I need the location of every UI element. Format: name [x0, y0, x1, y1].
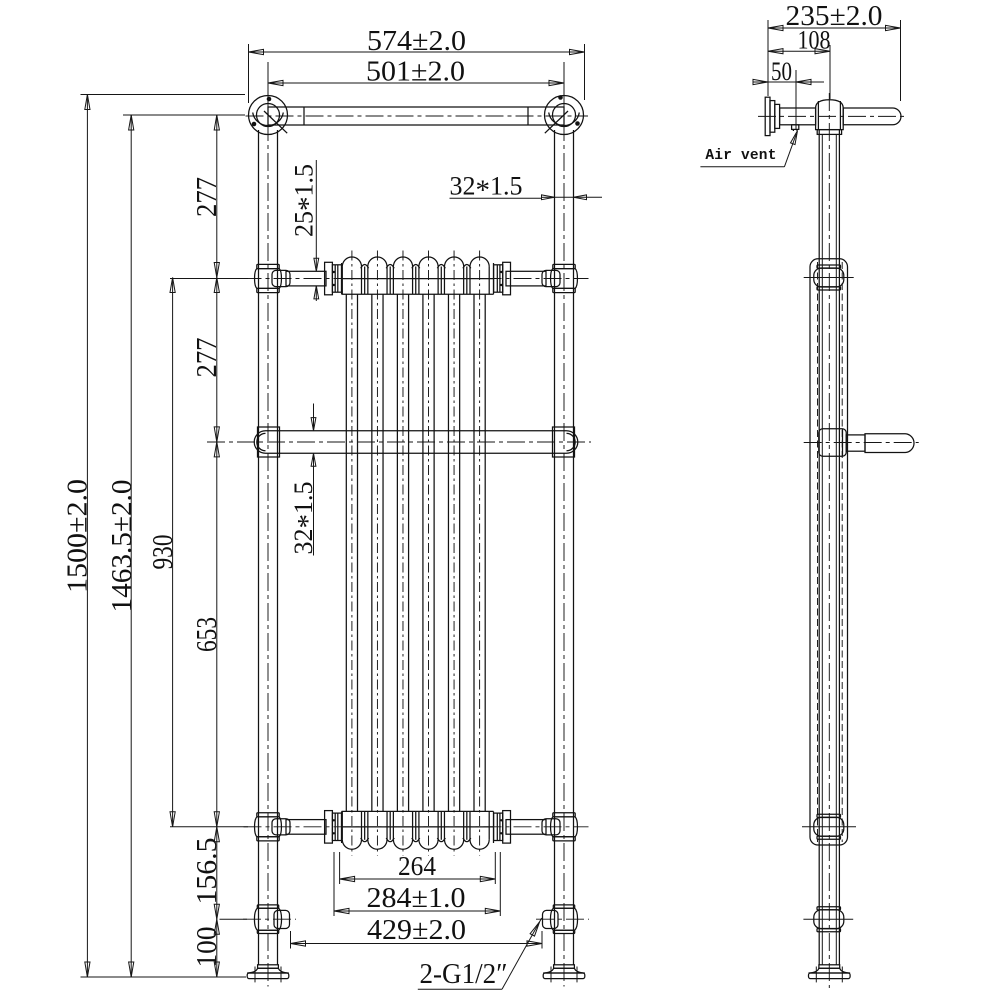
- svg-text:108: 108: [798, 26, 831, 55]
- svg-text:156.5: 156.5: [191, 838, 223, 905]
- svg-text:574±2.0: 574±2.0: [367, 25, 466, 57]
- svg-text:Air vent: Air vent: [705, 148, 776, 164]
- svg-text:501±2.0: 501±2.0: [366, 56, 465, 88]
- svg-text:930: 930: [147, 535, 179, 570]
- svg-text:284±1.0: 284±1.0: [367, 883, 466, 914]
- svg-text:277: 277: [191, 177, 223, 217]
- svg-text:100: 100: [191, 927, 223, 968]
- svg-text:429±2.0: 429±2.0: [367, 915, 466, 946]
- svg-text:277: 277: [191, 338, 223, 378]
- svg-text:1500±2.0: 1500±2.0: [63, 479, 94, 593]
- svg-text:2-G1/2″: 2-G1/2″: [420, 959, 508, 990]
- svg-text:264: 264: [398, 851, 436, 881]
- svg-text:653: 653: [191, 617, 223, 652]
- svg-text:50: 50: [771, 57, 792, 86]
- svg-text:1463.5±2.0: 1463.5±2.0: [107, 480, 138, 613]
